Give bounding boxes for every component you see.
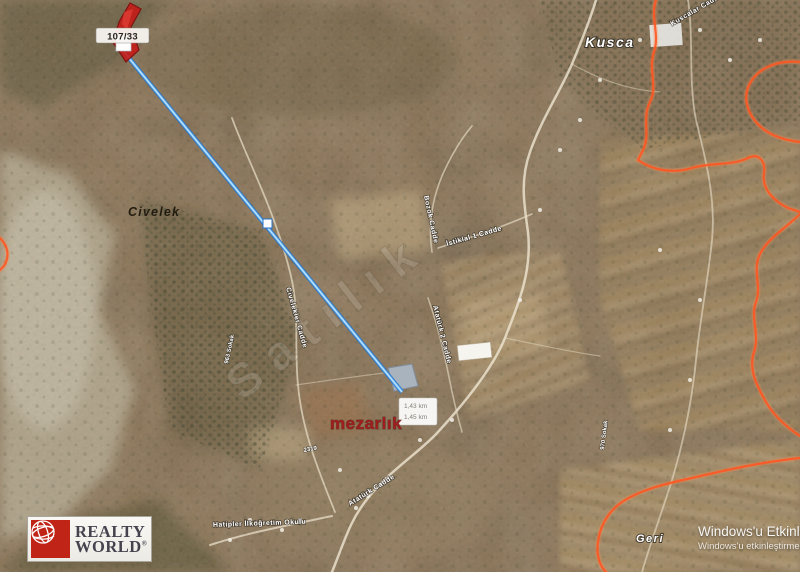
logo-wordmark: REALTY WORLD®: [75, 524, 147, 554]
ruler-mid-handle: [263, 219, 272, 228]
parcel-label-text: 107/33: [107, 32, 138, 43]
place-label-kusca: Kusca: [585, 34, 635, 50]
globe-icon: [31, 520, 70, 558]
parcel-label: 107/33: [96, 28, 149, 43]
place-label-geri: Geri: [636, 533, 664, 545]
windows-activation-subtitle: Windows'u etkinleştirmek için: [698, 541, 800, 552]
measure-distance-line2: 1,45 km: [404, 414, 427, 421]
realty-world-logo: REALTY WORLD®: [27, 516, 152, 562]
place-label-civelek: Civelek: [128, 205, 180, 219]
logo-line2: WORLD: [75, 537, 142, 556]
cemetery-label: mezarlık: [330, 414, 402, 433]
satellite-map-viewport[interactable]: Satılık 107/33 1,43 km 1,45 km Kusca Civ…: [0, 0, 800, 572]
warehouse-building: [457, 342, 491, 360]
registered-mark: ®: [142, 540, 148, 548]
satellite-map-image: Satılık 107/33 1,43 km 1,45 km Kusca Civ…: [0, 0, 800, 572]
measure-distance-box: 1,43 km 1,45 km: [399, 398, 437, 425]
windows-activation-toast: Windows'u Etkinleştir Windows'u etkinleş…: [698, 524, 800, 552]
windows-activation-title: Windows'u Etkinleştir: [698, 524, 800, 539]
measure-distance-line1: 1,43 km: [404, 403, 427, 410]
